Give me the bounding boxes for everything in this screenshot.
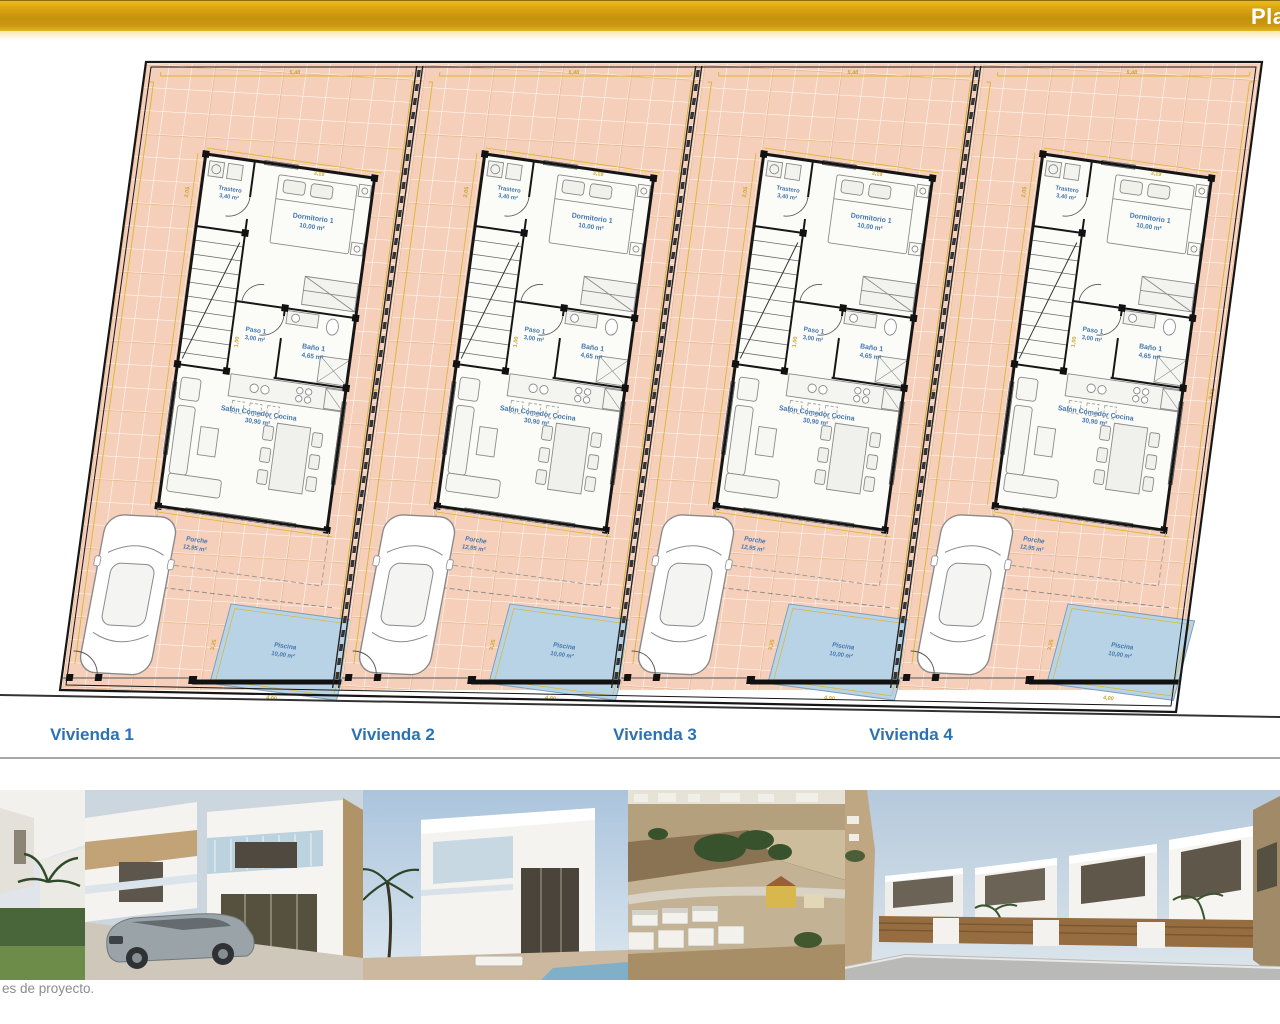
vivienda-1-label: Vivienda 1 [50,725,134,744]
gallery-caption: es de proyecto. [2,981,94,996]
site-plan-area: 5,48 9,66 [0,0,1280,775]
vivienda-4-label: Vivienda 4 [869,725,953,744]
gallery-photo-aerial [628,790,845,980]
gallery-photo-villa-car [85,790,363,980]
vivienda-2-label: Vivienda 2 [351,725,435,744]
gallery-photo-villa-palm [0,790,85,980]
vivienda-3-label: Vivienda 3 [613,725,697,744]
site-plan-drawing: 5,48 9,66 [0,0,1280,775]
gallery-photo-townhouse-row [845,790,1280,980]
photo-gallery [0,790,1280,980]
gallery-photo-villa-pool [363,790,628,980]
